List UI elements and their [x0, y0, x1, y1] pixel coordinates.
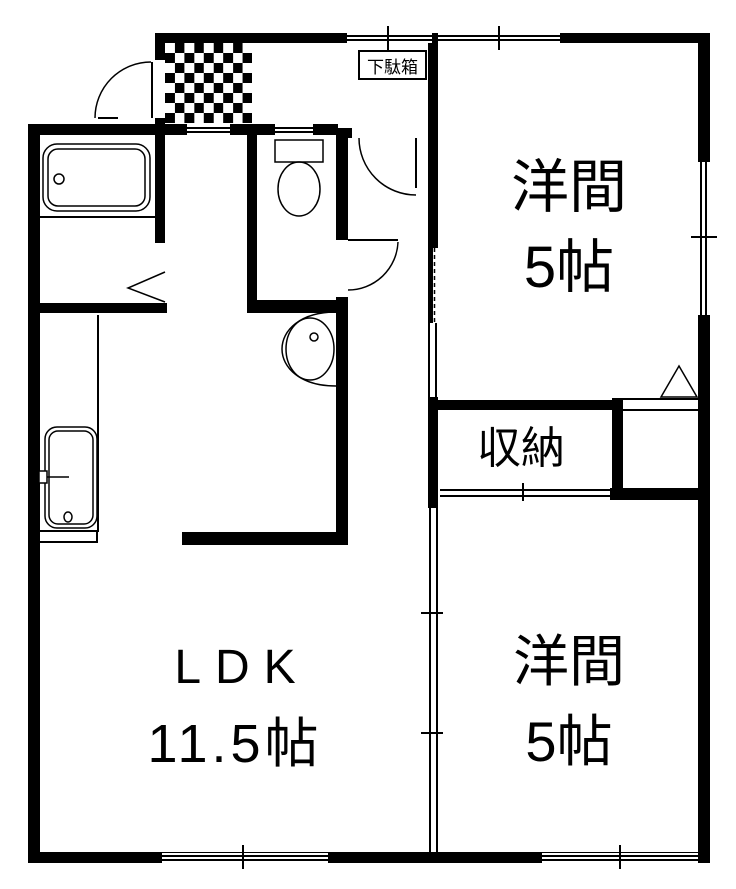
room-label-ldk: LDK 11.5帖	[95, 630, 375, 782]
toilet-door-arc	[348, 242, 398, 290]
genkan-opening-2-line	[275, 131, 313, 133]
room-size: 5帖	[428, 228, 710, 308]
window-top-a-line	[347, 35, 432, 37]
front-door-arc	[95, 62, 151, 118]
bedroom1-slide-door-line	[435, 323, 437, 397]
wall-corridor-stub	[336, 128, 352, 138]
front-door-stub	[98, 117, 118, 119]
genkan-opening-2-line	[275, 127, 313, 129]
wall-kitchen-divider	[182, 532, 347, 545]
room-size: 11.5帖	[95, 706, 375, 782]
genkan-opening-1	[187, 124, 230, 135]
wall-left	[28, 124, 40, 863]
wall-washbasin	[336, 311, 348, 545]
toilet-door-opening	[336, 240, 348, 297]
window-ldk-line	[162, 855, 328, 857]
toilet-icon	[275, 140, 323, 216]
window-bedroom2-tick	[619, 845, 621, 869]
window-ldk-tick	[242, 845, 244, 869]
washbasin-icon	[282, 312, 336, 386]
room-size: 5帖	[428, 702, 710, 782]
ldk-partition-tick	[421, 612, 443, 614]
room-name: 洋間	[428, 148, 710, 228]
wall-toilet-west	[247, 135, 257, 313]
wall-toilet-south	[247, 300, 348, 313]
window-top-b-tick	[498, 26, 500, 50]
wall-washroom-south	[28, 303, 167, 313]
corridor-door-leaf	[415, 138, 417, 188]
kitchen-counter-edge	[97, 315, 99, 532]
bathtub-icon	[43, 144, 150, 211]
genkan-opening-1-line	[187, 131, 230, 133]
closet-top-line	[623, 398, 698, 400]
kitchen-sink-icon	[39, 427, 97, 528]
bath-divider-line	[40, 216, 155, 218]
room-name: 収納	[428, 426, 614, 472]
shoe-cabinet-label: 下駄箱	[367, 53, 418, 78]
wall-bedroom2-north	[610, 488, 710, 500]
storage-slide-door-tick	[522, 483, 524, 501]
room-name: LDK	[95, 630, 375, 706]
corner-triangle-icon	[661, 366, 697, 397]
front-door-opening	[155, 60, 165, 118]
bedroom1-slide-door-line	[428, 323, 430, 397]
genkan-opening-2	[275, 124, 313, 135]
room-label-storage: 収納	[428, 426, 614, 472]
genkan-tile-floor	[165, 43, 252, 123]
closet-top-line	[623, 409, 698, 411]
shoe-cabinet-box: 下駄箱	[358, 50, 427, 80]
window-ldk-line	[162, 859, 328, 861]
room-label-western-top: 洋間 5帖	[428, 148, 710, 308]
kitchen-counter-ledge	[34, 530, 98, 532]
floor-plan: 下駄箱 洋間 5帖 収納 洋間 5帖 LDK 11.5帖	[0, 0, 736, 889]
genkan-opening-1-line	[187, 127, 230, 129]
front-door-leaf	[151, 62, 153, 118]
window-top-a-tick	[387, 26, 389, 50]
room-label-western-bottom: 洋間 5帖	[428, 622, 710, 782]
kitchen-counter-ledge	[34, 541, 98, 543]
toilet-door-leaf	[348, 239, 398, 241]
storage-slide-door-line	[440, 489, 612, 491]
window-top-a-line	[347, 39, 432, 41]
storage-slide-door-line	[440, 495, 612, 497]
room-name: 洋間	[428, 622, 710, 702]
kitchen-counter-end	[96, 530, 98, 543]
corridor-door-arc	[359, 138, 416, 195]
washroom-door-opening	[155, 243, 165, 303]
wall-bedroom1-south	[428, 400, 623, 410]
